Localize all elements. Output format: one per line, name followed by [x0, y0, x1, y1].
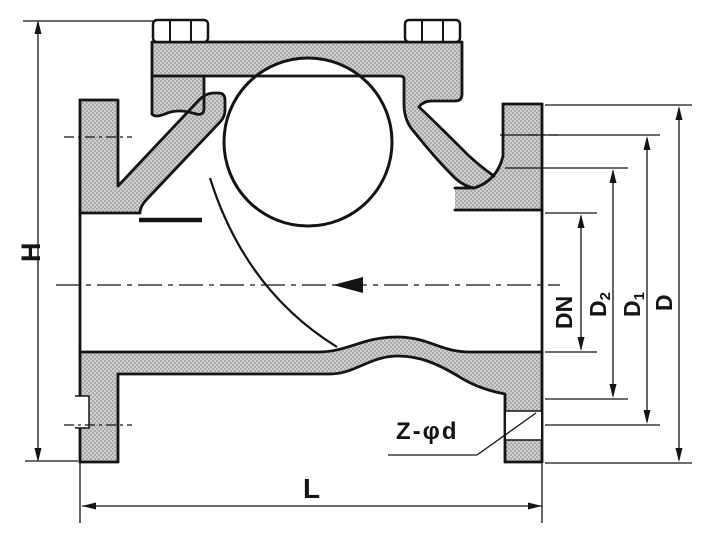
dim-dn-arrow-bottom-icon: [578, 337, 585, 351]
valve-ball: [224, 58, 392, 226]
bore-bottom-line: [80, 337, 542, 352]
dim-h-arrow-top-icon: [35, 20, 42, 34]
body-bottom-wall-section: [80, 337, 542, 462]
valve-section-drawing: H L DN D2 D1 D Z-φd: [0, 0, 706, 539]
dim-d-arrow-top-icon: [676, 106, 683, 120]
dim-label-raised-face-base: D: [585, 300, 611, 317]
dim-d2-arrow-top-icon: [610, 169, 617, 183]
dim-d1-arrow-bottom-icon: [644, 410, 651, 424]
dim-label-raised-face: D2: [585, 292, 614, 317]
right-bolt-head: [405, 20, 460, 42]
dim-d-arrow-bottom-icon: [676, 448, 683, 462]
technical-drawing-canvas: H L DN D2 D1 D Z-φd: [0, 0, 706, 539]
dim-label-nominal-bore: DN: [551, 296, 577, 329]
dim-d2-arrow-bottom-icon: [610, 384, 617, 398]
left-bolt-head: [153, 20, 208, 42]
dim-label-raised-face-sub: 2: [597, 292, 614, 300]
dim-label-flange-od: D: [651, 294, 677, 311]
dim-label-bolt-circle-base: D: [619, 300, 645, 317]
dim-dn-arrow-top-icon: [578, 214, 585, 228]
dim-label-bolt-circle-sub: 1: [631, 292, 648, 300]
dim-label-bolt-circle: D1: [619, 292, 648, 317]
dim-l-arrow-right-icon: [528, 503, 542, 510]
inlet-bolt-hole-notch: [75, 396, 89, 428]
flow-direction-arrow-icon: [333, 277, 363, 293]
dim-label-bolt-holes: Z-φd: [396, 418, 458, 445]
dim-label-length: L: [303, 473, 320, 504]
dim-d1-arrow-top-icon: [644, 136, 651, 150]
dim-l-arrow-left-icon: [82, 503, 96, 510]
bonnet-bolts: [153, 20, 460, 42]
dim-h-arrow-bottom-icon: [35, 448, 42, 462]
outlet-bolt-hole: [506, 411, 541, 440]
dim-label-height: H: [16, 243, 46, 263]
